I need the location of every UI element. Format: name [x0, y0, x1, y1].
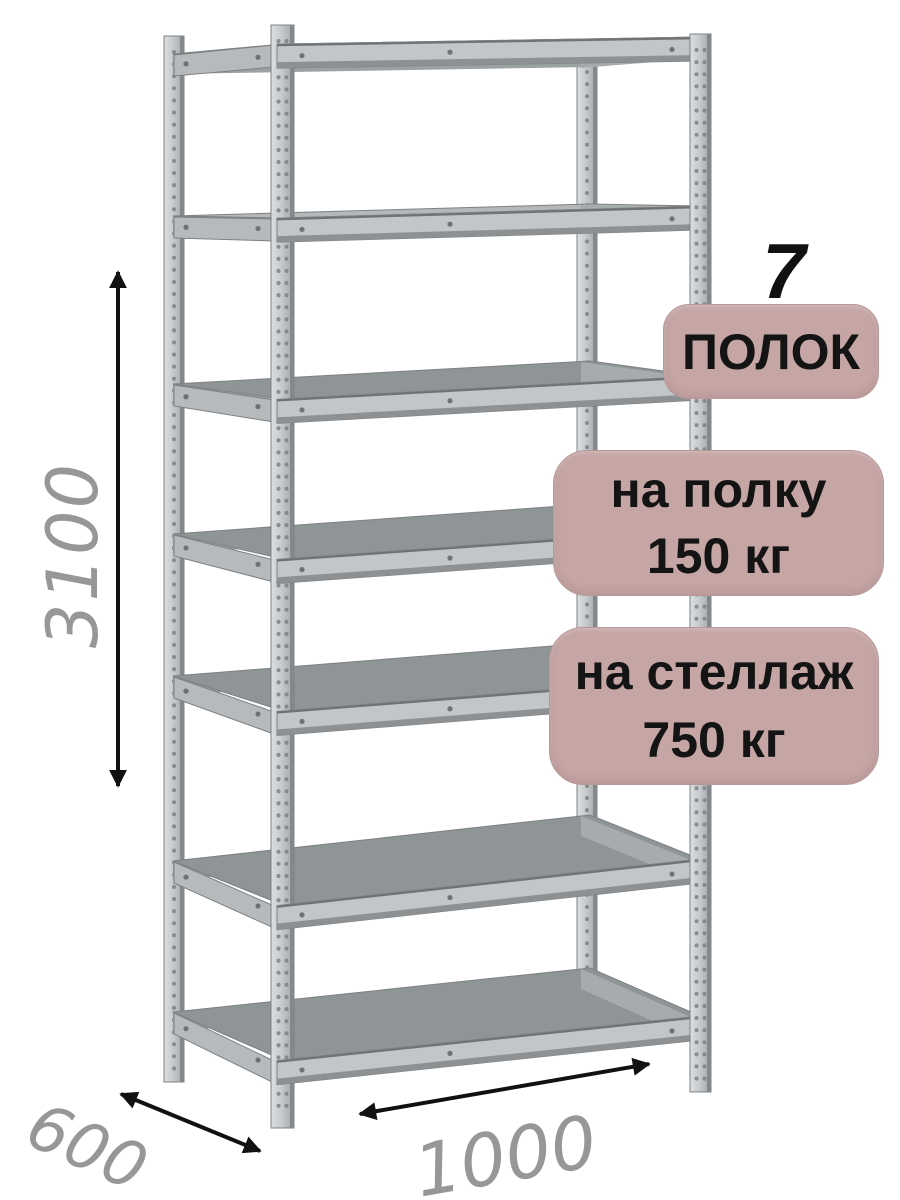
rack-bolt: [255, 404, 260, 409]
rack-bolt: [255, 1057, 260, 1062]
shelving-rack-illustration: 3100 600 1000: [0, 0, 900, 1200]
rack-bolt: [669, 216, 674, 221]
rack-bolt: [183, 689, 188, 694]
rack-bolt: [299, 227, 304, 232]
rack-load-line2: 750 кг: [642, 706, 785, 774]
rack-bolt: [669, 47, 674, 52]
rack-load-line1: на стеллаж: [575, 638, 854, 706]
shelf-load-badge: на полку 150 кг: [553, 450, 884, 596]
rack-bolt: [299, 912, 304, 917]
shelf-count-badge: ПОЛОК: [663, 304, 879, 399]
rack-bolt: [183, 61, 188, 66]
shelf-load-line2: 150 кг: [647, 523, 790, 589]
rack-bolt: [255, 711, 260, 716]
rack-bolt: [447, 50, 452, 55]
depth-dimension-label: 600: [16, 1089, 158, 1200]
rack-bolt: [447, 555, 452, 560]
rack-bolt: [447, 398, 452, 403]
rack-bolt: [669, 1028, 674, 1033]
rack-bolt: [255, 562, 260, 567]
rack-bolt: [299, 53, 304, 58]
rack-bolt: [669, 871, 674, 876]
rack-bolt: [447, 706, 452, 711]
shelf-load-line1: на полку: [611, 457, 827, 523]
rack-bolt: [255, 55, 260, 60]
rack-bolt: [299, 719, 304, 724]
rack-bolt: [447, 895, 452, 900]
rack-bolt: [183, 394, 188, 399]
rack-bolt: [299, 567, 304, 572]
rack-load-badge: на стеллаж 750 кг: [549, 627, 879, 785]
rack-bolt: [183, 225, 188, 230]
rack-post-back-left-shade: [180, 36, 184, 1082]
height-dimension-label: 3100: [32, 462, 114, 648]
rack-bolt: [183, 875, 188, 880]
rack-bolt: [255, 903, 260, 908]
rack-bolt: [299, 1067, 304, 1072]
rack-bolt: [183, 545, 188, 550]
rack-bolt: [183, 1026, 188, 1031]
product-image: 3100 600 1000 7 ПОЛОК на полку 150 кг на…: [0, 0, 900, 1200]
rack-bolt: [447, 1051, 452, 1056]
rack-bolt: [255, 226, 260, 231]
rack-bolt: [447, 222, 452, 227]
width-dimension-label: 1000: [408, 1099, 603, 1200]
shelf-count-label: ПОЛОК: [682, 323, 860, 381]
rack-bolt: [299, 407, 304, 412]
